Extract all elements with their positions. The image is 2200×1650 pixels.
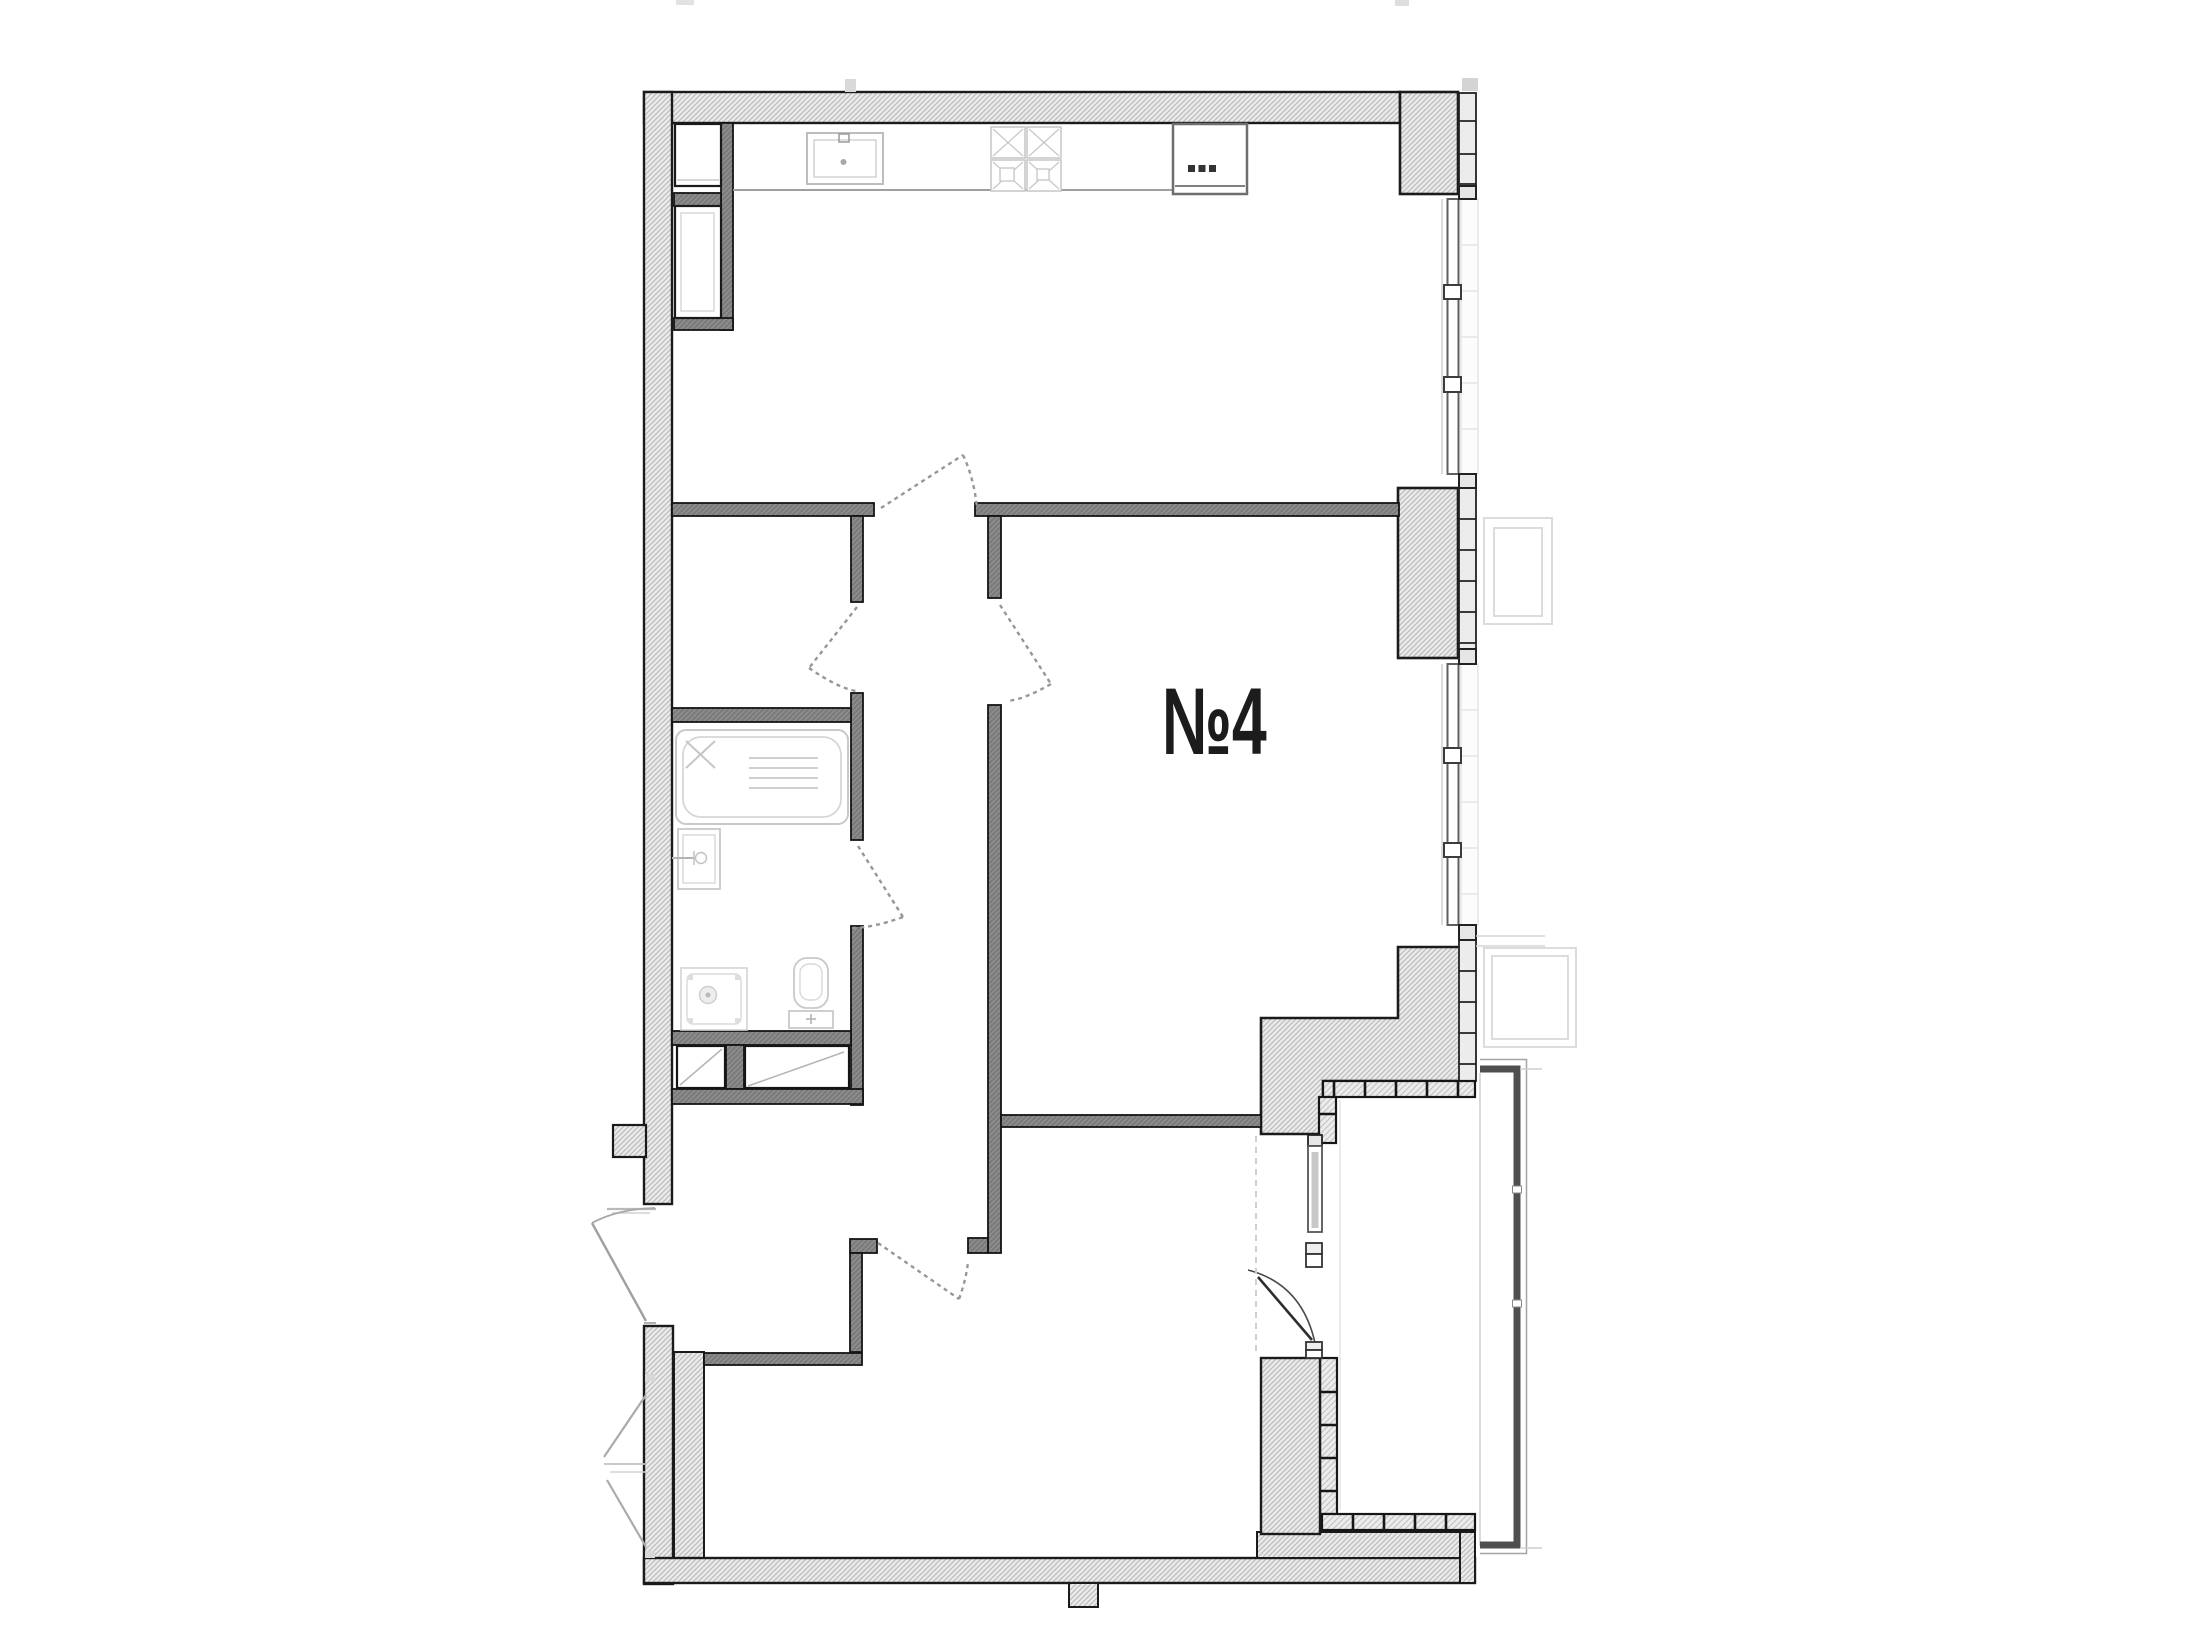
svg-text:№4: №4 (1162, 669, 1267, 775)
